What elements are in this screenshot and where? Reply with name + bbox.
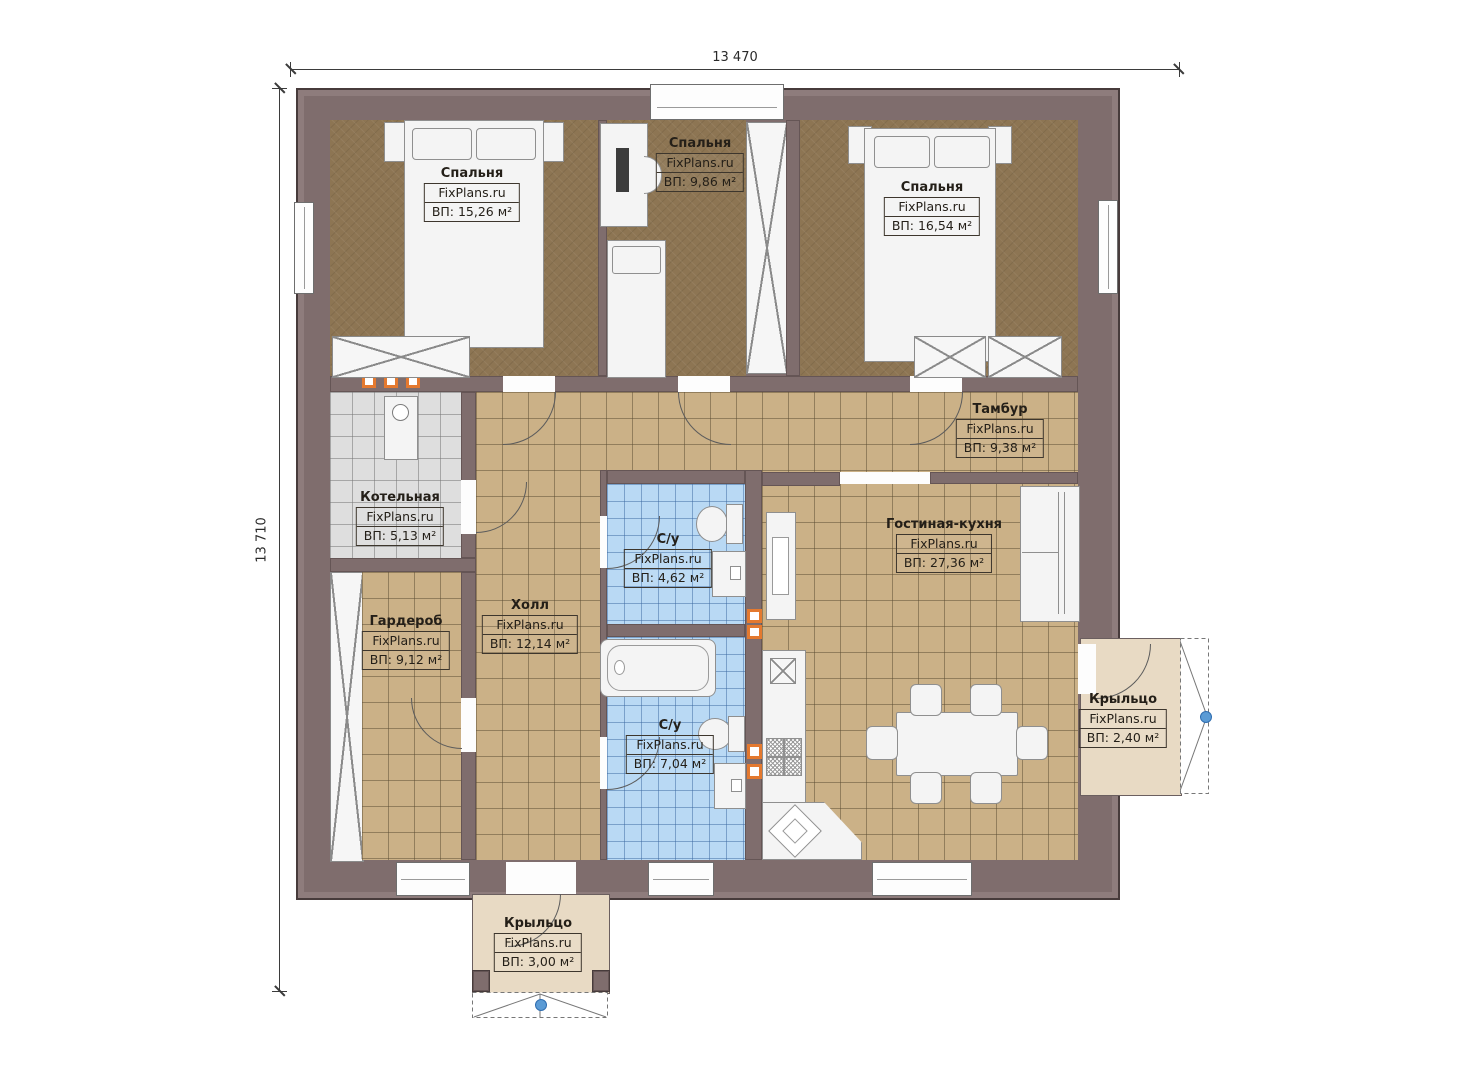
kitchen-sink bbox=[770, 658, 796, 684]
floor-plan: 13 470 13 710 bbox=[0, 0, 1474, 1080]
room-label-wc-bottom: С/у FixPlans.ruВП: 7,04 м² bbox=[626, 718, 714, 774]
interior-wall bbox=[607, 624, 745, 637]
chair bbox=[910, 684, 942, 716]
handle-dot bbox=[1200, 711, 1212, 723]
stove-burner bbox=[784, 757, 802, 776]
pillow bbox=[874, 136, 930, 168]
watermark: FixPlans.ru bbox=[885, 198, 979, 216]
vent-marker bbox=[747, 625, 762, 639]
room-area: ВП: 15,26 м² bbox=[425, 202, 519, 221]
interior-wall bbox=[330, 558, 476, 572]
nightstand bbox=[384, 122, 406, 162]
door-wc-bottom bbox=[600, 737, 607, 789]
window-left bbox=[294, 202, 314, 294]
door-wc-top bbox=[600, 516, 607, 568]
room-label-tambur: Тамбур FixPlans.ruВП: 9,38 м² bbox=[956, 402, 1044, 458]
wardrobe-cabinet bbox=[332, 336, 470, 378]
room-label-wc-top: С/у FixPlans.ruВП: 4,62 м² bbox=[624, 532, 712, 588]
watermark: FixPlans.ru bbox=[495, 934, 581, 952]
dimension-height-label: 13 710 bbox=[255, 517, 270, 563]
sofa bbox=[1020, 486, 1080, 622]
room-label-porch-right: Крыльцо FixPlans.ruВП: 2,40 м² bbox=[1079, 692, 1167, 748]
interior-wall bbox=[930, 472, 1078, 484]
stove-burner bbox=[766, 757, 784, 776]
stove-burner bbox=[766, 738, 784, 757]
window-bottom-3 bbox=[872, 862, 972, 896]
door-bedroom-middle bbox=[678, 376, 730, 392]
vent-marker bbox=[747, 744, 762, 759]
handle-dot bbox=[535, 999, 547, 1011]
built-in-closet bbox=[746, 122, 788, 374]
dining-table bbox=[896, 712, 1018, 776]
door-boiler-room bbox=[461, 480, 476, 534]
watermark: FixPlans.ru bbox=[627, 736, 713, 754]
room-name: Спальня bbox=[424, 166, 520, 181]
room-area: ВП: 5,13 м² bbox=[357, 526, 443, 545]
nightstand bbox=[542, 122, 564, 162]
chair bbox=[910, 772, 942, 804]
room-area: ВП: 7,04 м² bbox=[627, 754, 713, 773]
pillow bbox=[476, 128, 536, 160]
vent-marker bbox=[747, 764, 762, 779]
room-name: Гардероб bbox=[362, 614, 450, 629]
porch-pillar bbox=[472, 970, 490, 992]
room-area: ВП: 16,54 м² bbox=[885, 216, 979, 235]
room-name: Крыльцо bbox=[1079, 692, 1167, 707]
room-name: Спальня bbox=[656, 136, 744, 151]
pillow bbox=[412, 128, 472, 160]
room-name: Спальня bbox=[884, 180, 980, 195]
room-name: Холл bbox=[482, 598, 578, 613]
window-right bbox=[1098, 200, 1118, 294]
washer-door bbox=[730, 566, 741, 580]
sofa-seat-line bbox=[1022, 552, 1058, 553]
room-label-porch-bottom: Крыльцо FixPlans.ruВП: 3,00 м² bbox=[494, 916, 582, 972]
room-name: Гостиная-кухня bbox=[886, 517, 1002, 532]
dimension-line-left bbox=[279, 88, 280, 992]
porch-pillar bbox=[592, 970, 610, 992]
watermark: FixPlans.ru bbox=[483, 616, 577, 634]
room-label-bedroom-left: Спальня FixPlans.ruВП: 15,26 м² bbox=[424, 166, 520, 222]
tv bbox=[616, 148, 629, 192]
toilet-tank bbox=[728, 716, 745, 752]
chair bbox=[970, 772, 1002, 804]
vent-marker bbox=[747, 609, 762, 623]
top-vent-block bbox=[650, 84, 784, 120]
room-area: ВП: 3,00 м² bbox=[495, 952, 581, 971]
room-area: ВП: 2,40 м² bbox=[1080, 728, 1166, 747]
window-bottom-2 bbox=[648, 862, 714, 896]
room-label-living-kitchen: Гостиная-кухня FixPlans.ruВП: 27,36 м² bbox=[886, 517, 1002, 573]
door-wardrobe-room bbox=[461, 698, 476, 752]
watermark: FixPlans.ru bbox=[363, 632, 449, 650]
dimension-line-top bbox=[290, 69, 1180, 70]
room-area: ВП: 4,62 м² bbox=[625, 568, 711, 587]
room-area: ВП: 9,86 м² bbox=[657, 172, 743, 191]
watermark: FixPlans.ru bbox=[1080, 710, 1166, 728]
pillow bbox=[612, 246, 661, 274]
toilet-tank bbox=[726, 504, 743, 544]
dimension-width-label: 13 470 bbox=[712, 50, 758, 65]
watermark: FixPlans.ru bbox=[957, 420, 1043, 438]
room-name: С/у bbox=[624, 532, 712, 547]
interior-wall bbox=[786, 120, 800, 376]
room-label-bedroom-middle: Спальня FixPlans.ruВП: 9,86 м² bbox=[656, 136, 744, 192]
watermark: FixPlans.ru bbox=[425, 184, 519, 202]
stove-burner bbox=[784, 738, 802, 757]
room-label-boiler-room: Котельная FixPlans.ruВП: 5,13 м² bbox=[356, 490, 444, 546]
door-bedroom-left bbox=[503, 376, 555, 392]
room-name: Крыльцо bbox=[494, 916, 582, 931]
window-bottom-1 bbox=[396, 862, 470, 896]
sofa-back-line bbox=[1064, 492, 1065, 614]
watermark: FixPlans.ru bbox=[625, 550, 711, 568]
bathtub-drain bbox=[614, 660, 625, 675]
room-area: ВП: 12,14 м² bbox=[483, 634, 577, 653]
room-area: ВП: 27,36 м² bbox=[897, 553, 991, 572]
boiler-dial bbox=[392, 404, 409, 421]
wardrobe-cabinet bbox=[988, 336, 1062, 378]
room-area: ВП: 9,38 м² bbox=[957, 438, 1043, 457]
room-label-wardrobe-room: Гардероб FixPlans.ruВП: 9,12 м² bbox=[362, 614, 450, 670]
chair bbox=[1016, 726, 1048, 760]
room-area: ВП: 9,12 м² bbox=[363, 650, 449, 669]
room-label-bedroom-right: Спальня FixPlans.ruВП: 16,54 м² bbox=[884, 180, 980, 236]
interior-wall bbox=[745, 470, 762, 860]
room-name: Тамбур bbox=[956, 402, 1044, 417]
interior-wall bbox=[607, 470, 745, 484]
watermark: FixPlans.ru bbox=[657, 154, 743, 172]
wardrobe-cabinet bbox=[330, 572, 364, 862]
wardrobe-cabinet bbox=[914, 336, 986, 378]
door-porch-right bbox=[1078, 644, 1096, 694]
room-name: С/у bbox=[626, 718, 714, 733]
door-bedroom-right bbox=[910, 376, 962, 392]
interior-wall bbox=[762, 472, 840, 486]
pillow bbox=[934, 136, 990, 168]
sink-tap bbox=[731, 779, 742, 792]
chair bbox=[970, 684, 1002, 716]
door-porch-bottom bbox=[506, 862, 576, 894]
tall-cabinet-inner bbox=[772, 537, 789, 595]
chair bbox=[866, 726, 898, 760]
wall-opening bbox=[840, 472, 930, 484]
sofa-back-line bbox=[1058, 492, 1059, 614]
room-name: Котельная bbox=[356, 490, 444, 505]
watermark: FixPlans.ru bbox=[357, 508, 443, 526]
watermark: FixPlans.ru bbox=[897, 535, 991, 553]
room-label-hall: Холл FixPlans.ruВП: 12,14 м² bbox=[482, 598, 578, 654]
